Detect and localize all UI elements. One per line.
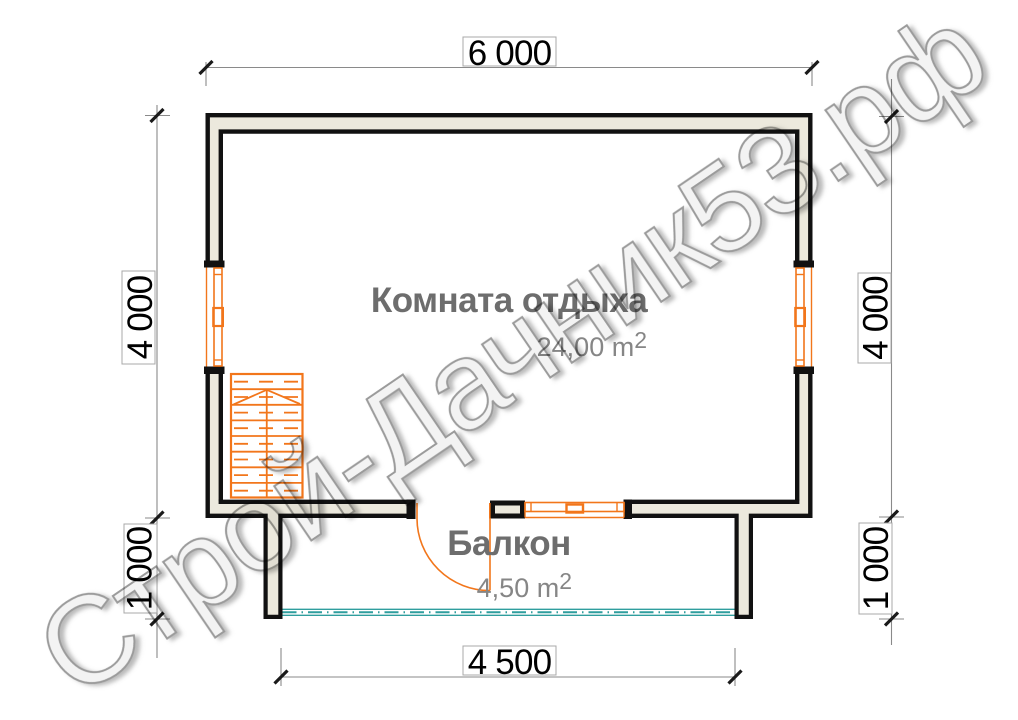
svg-text:4 000: 4 000 [121,275,160,359]
svg-text:Балкон: Балкон [447,524,570,563]
svg-text:6 000: 6 000 [468,34,552,73]
svg-text:4 000: 4 000 [857,276,896,360]
svg-text:4,50 m2: 4,50 m2 [477,568,572,603]
svg-text:4 500: 4 500 [468,643,552,682]
svg-text:1 000: 1 000 [857,526,896,610]
